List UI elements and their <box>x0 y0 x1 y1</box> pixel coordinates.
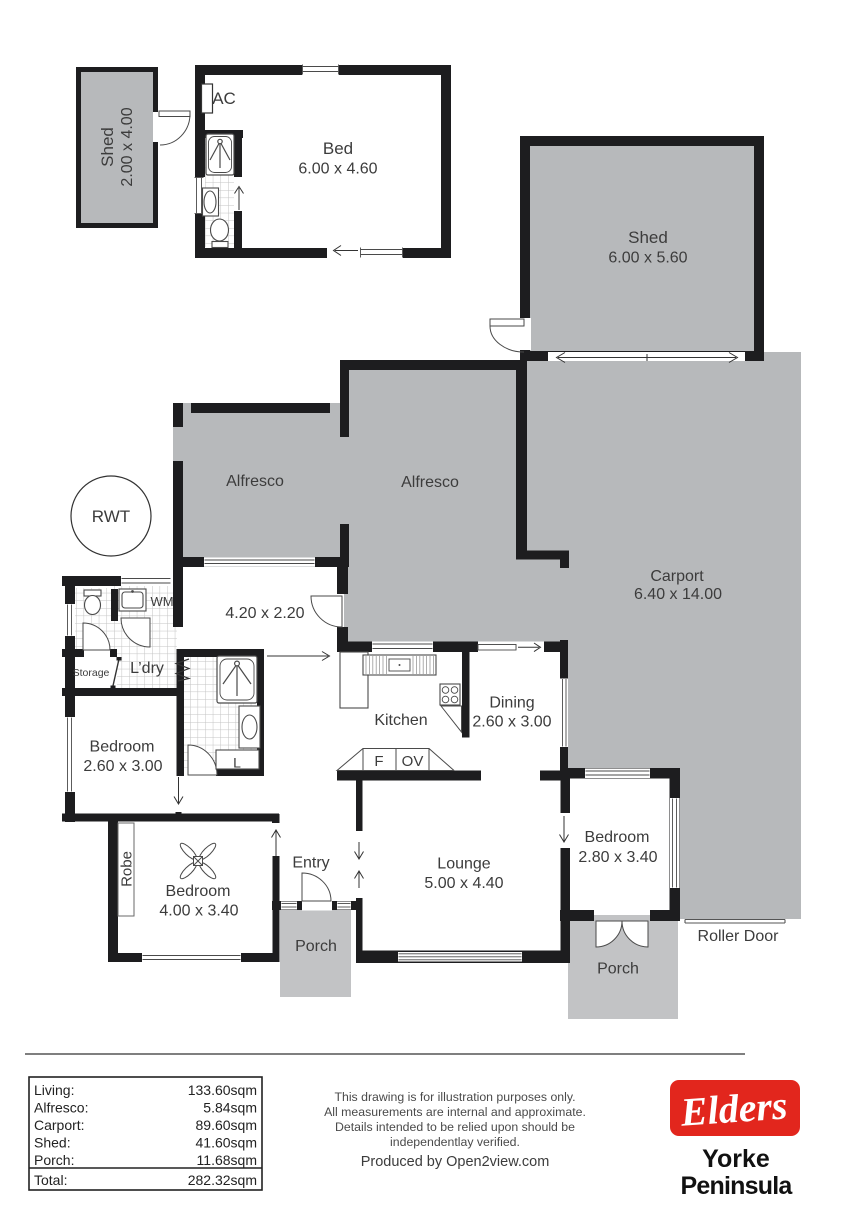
svg-text:Robe: Robe <box>119 851 136 887</box>
svg-text:Storage: Storage <box>73 667 110 679</box>
svg-text:Roller Door: Roller Door <box>698 928 780 945</box>
svg-text:Porch:: Porch: <box>34 1152 74 1168</box>
svg-text:2.60 x 3.00: 2.60 x 3.00 <box>472 714 551 731</box>
svg-text:Carport: Carport <box>650 568 704 585</box>
svg-text:Peninsula: Peninsula <box>681 1172 794 1200</box>
svg-text:Yorke: Yorke <box>702 1145 770 1173</box>
svg-text:Entry: Entry <box>292 855 329 872</box>
svg-text:Bed: Bed <box>323 139 353 158</box>
svg-text:Lounge: Lounge <box>437 856 490 873</box>
svg-text:Bedroom: Bedroom <box>166 883 231 900</box>
svg-text:Alfresco: Alfresco <box>226 473 284 490</box>
svg-text:Details intended to be relied: Details intended to be relied upon shoul… <box>335 1120 575 1134</box>
svg-text:6.40 x 14.00: 6.40 x 14.00 <box>634 586 722 603</box>
svg-text:Shed:: Shed: <box>34 1135 71 1151</box>
svg-text:Shed: Shed <box>628 228 668 247</box>
svg-text:WM: WM <box>150 594 173 609</box>
svg-text:4.20 x 2.20: 4.20 x 2.20 <box>225 605 304 622</box>
svg-text:AC: AC <box>212 89 236 108</box>
svg-text:Porch: Porch <box>295 938 337 955</box>
svg-text:Living:: Living: <box>34 1082 74 1098</box>
svg-text:RWT: RWT <box>92 507 130 526</box>
svg-text:F: F <box>374 753 383 770</box>
svg-text:Shed: Shed <box>98 127 117 167</box>
svg-text:4.00 x 3.40: 4.00 x 3.40 <box>159 903 238 920</box>
svg-text:6.00 x 4.60: 6.00 x 4.60 <box>298 161 377 178</box>
svg-text:5.84sqm: 5.84sqm <box>203 1100 257 1116</box>
svg-text:89.60sqm: 89.60sqm <box>196 1117 257 1133</box>
svg-text:133.60sqm: 133.60sqm <box>188 1082 257 1098</box>
svg-text:5.00 x 4.40: 5.00 x 4.40 <box>424 875 503 892</box>
svg-text:Bedroom: Bedroom <box>585 829 650 846</box>
svg-text:OV: OV <box>402 753 424 770</box>
svg-text:L’dry: L’dry <box>130 660 164 677</box>
svg-text:2.60 x 3.00: 2.60 x 3.00 <box>83 758 162 775</box>
svg-text:Alfresco: Alfresco <box>401 474 459 491</box>
svg-text:This drawing is for illustrati: This drawing is for illustration purpose… <box>334 1090 575 1104</box>
svg-text:Bedroom: Bedroom <box>90 739 155 756</box>
svg-text:Total:: Total: <box>34 1172 67 1188</box>
svg-text:6.00 x 5.60: 6.00 x 5.60 <box>608 250 687 267</box>
svg-text:L: L <box>233 755 241 771</box>
svg-text:Dining: Dining <box>489 695 534 712</box>
svg-text:2.80 x 3.40: 2.80 x 3.40 <box>578 849 657 866</box>
svg-text:282.32sqm: 282.32sqm <box>188 1172 257 1188</box>
svg-text:41.60sqm: 41.60sqm <box>196 1135 257 1151</box>
svg-text:Elders: Elders <box>678 1082 789 1134</box>
svg-text:independentlay verified.: independentlay verified. <box>390 1135 520 1149</box>
svg-text:Kitchen: Kitchen <box>374 712 427 729</box>
svg-text:Produced by Open2view.com: Produced by Open2view.com <box>361 1154 550 1170</box>
svg-text:Porch: Porch <box>597 961 639 978</box>
svg-text:Carport:: Carport: <box>34 1117 85 1133</box>
svg-text:Alfresco:: Alfresco: <box>34 1100 88 1116</box>
svg-text:11.68sqm: 11.68sqm <box>197 1152 257 1168</box>
svg-text:All measurements are internal: All measurements are internal and approx… <box>324 1105 586 1119</box>
svg-text:2.00 x 4.00: 2.00 x 4.00 <box>119 107 136 186</box>
